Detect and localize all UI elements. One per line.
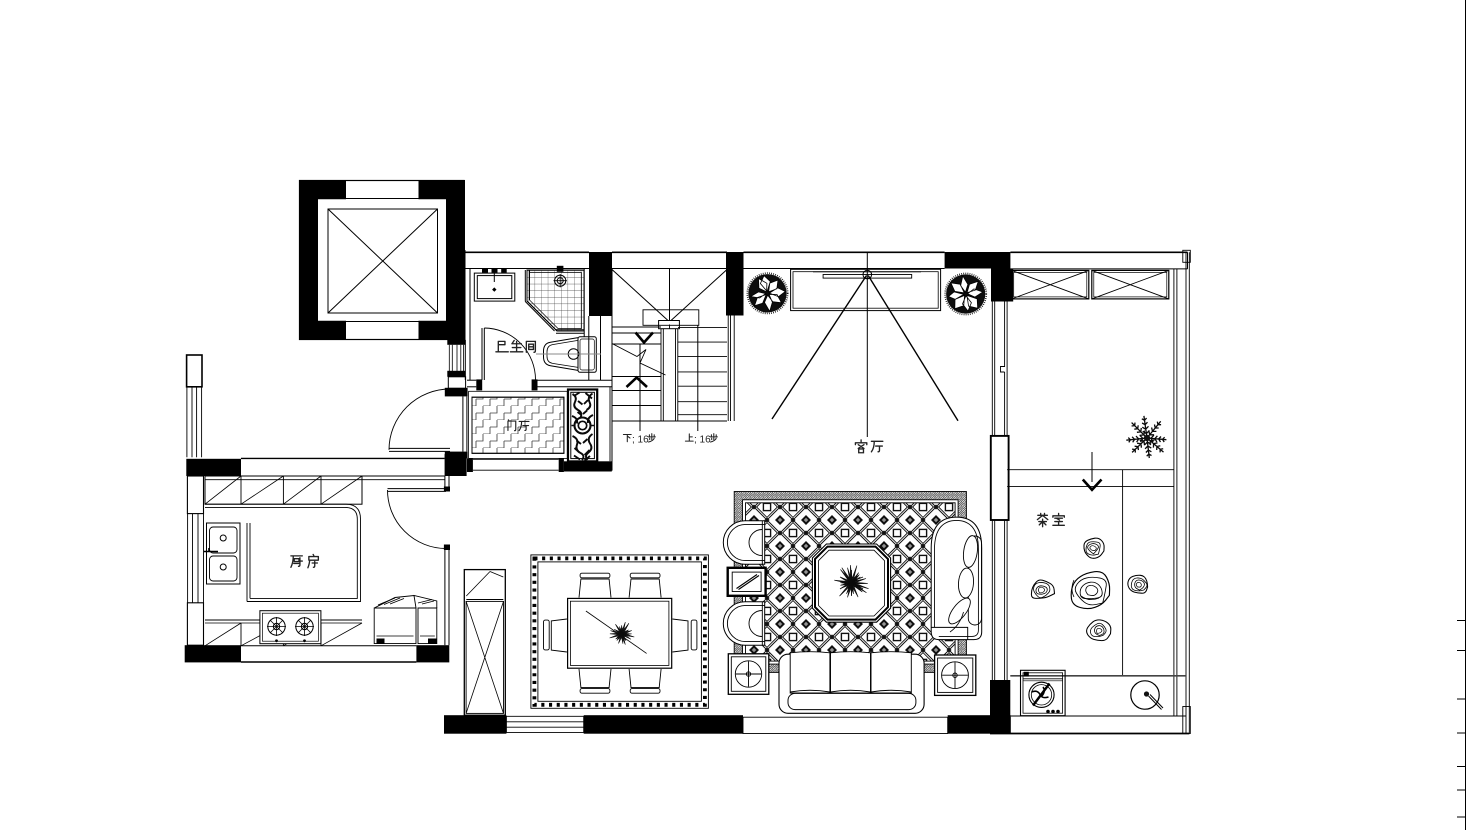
svg-text:; 16: ; 16: [632, 434, 649, 445]
svg-text:; 16: ; 16: [694, 434, 711, 445]
